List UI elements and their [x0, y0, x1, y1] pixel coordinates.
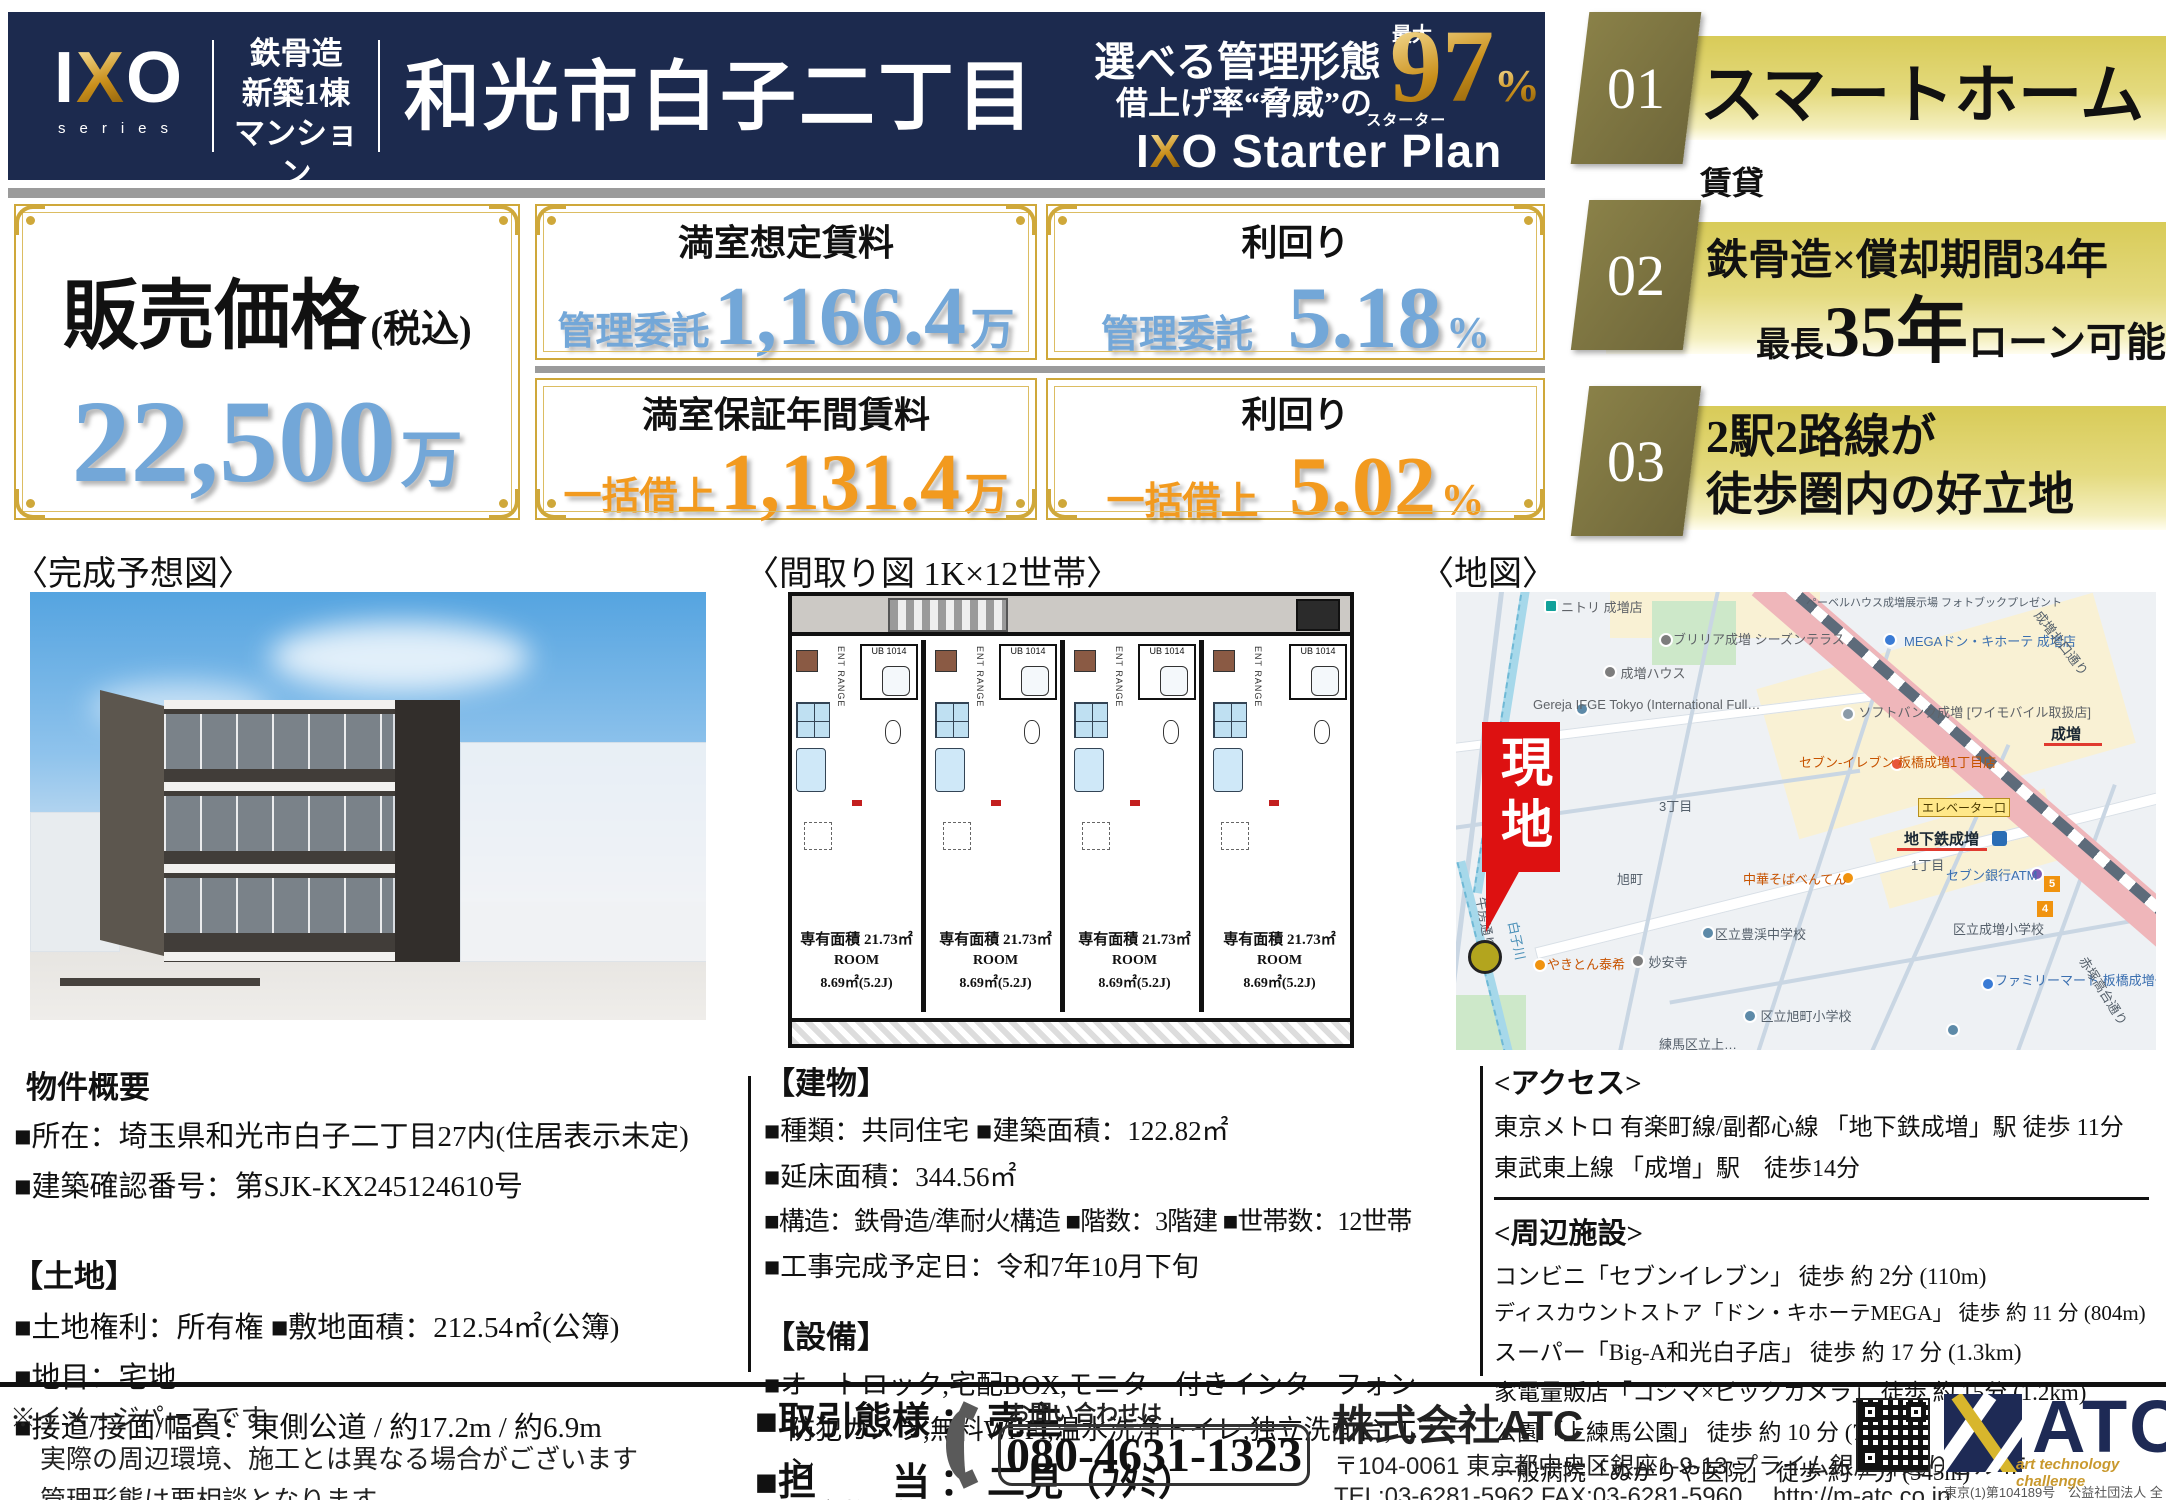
- feature-3-badge: 03: [1571, 386, 1701, 536]
- unit-plan: ENT RANGE UB 1014 専有面積 21.73㎡ ROOM 8.69㎡…: [792, 640, 926, 1012]
- feature-3-line2: 徒歩圏内の好立地: [1706, 466, 2074, 524]
- footer-notes: ※イメージパースです 実際の周辺環境、施工とは異なる場合がございます 管理形態は…: [10, 1398, 638, 1500]
- ub-label: UB 1014: [1149, 646, 1184, 656]
- bathtub: [1311, 666, 1339, 696]
- building-render: [30, 592, 706, 1020]
- unit-plan: ENT RANGE UB 1014 専有面積 21.73㎡ ROOM 8.69㎡…: [931, 640, 1065, 1012]
- nearby-line: ディスカウントストア「ドン・キホーテMEGA」 徒歩 約 11 分 (804m): [1494, 1297, 2160, 1327]
- feature-1-badge: 01: [1571, 12, 1702, 164]
- frame-corner: [1006, 205, 1036, 235]
- station-underline: [2044, 743, 2102, 746]
- unit-bath: UB 1014: [999, 644, 1057, 700]
- plan-logo-x: X: [1150, 125, 1182, 177]
- feature-1-main: スマートホーム: [1700, 60, 2144, 131]
- ceiling-light: [943, 822, 971, 850]
- stat-unit: 万: [964, 470, 1008, 519]
- map-label: 区立旭町小学校: [1761, 1006, 1852, 1025]
- price-value: 22,500: [72, 376, 397, 507]
- poi-icon: [1981, 977, 1995, 991]
- rate-97: 97%: [1390, 20, 1540, 114]
- wall-marker: [1130, 800, 1140, 806]
- map-label: 区立成増小学校: [1953, 919, 2044, 938]
- rate-value: 97: [1390, 9, 1494, 124]
- stat-value: 1,131.4: [720, 439, 960, 527]
- phone-number-box: 080-4631-1323: [998, 1424, 1310, 1486]
- note-line: 実際の周辺環境、施工とは異なる場合がございます: [40, 1439, 638, 1476]
- features-column: スマートホーム 賃貸 01 鉄骨造×償却期間34年 最長35年ローン可能 02 …: [1560, 0, 2166, 540]
- unit-area: 専有面積 21.73㎡: [1209, 928, 1350, 949]
- building-dark-column: [395, 700, 460, 962]
- feature-3-text: 2駅2路線が 徒歩圏内の好立地: [1706, 408, 2074, 524]
- logo-letter-i: I: [54, 38, 76, 118]
- stat-title: 利回り: [1048, 386, 1543, 438]
- route-number: 4: [2037, 901, 2053, 917]
- kitchen: [796, 702, 830, 738]
- unit-area: 専有面積 21.73㎡: [1070, 928, 1199, 949]
- map-label: やきとん泰希: [1547, 954, 1625, 973]
- frame-corner: [1006, 489, 1036, 519]
- unit-area: 専有面積 21.73㎡: [792, 928, 921, 949]
- fence: [60, 978, 260, 986]
- divider-bar: [8, 188, 1545, 198]
- frame-corner: [536, 489, 566, 519]
- overview-line: ■所在：埼玉県和光市白子二丁目27内(住居表示未定): [14, 1113, 741, 1155]
- frame-corner: [1047, 489, 1077, 519]
- feature-2-badge: 02: [1571, 200, 1701, 350]
- unit-plan: ENT RANGE UB 1014 専有面積 21.73㎡ ROOM 8.69㎡…: [1209, 640, 1350, 1012]
- feature-1-text: スマートホーム 賃貸: [1700, 44, 2166, 210]
- frame-corner: [1514, 489, 1544, 519]
- toilet: [1024, 720, 1040, 744]
- site-marker-text: 現地: [1484, 735, 1559, 859]
- price-box: 販売価格 (税込) 22,500 万: [14, 204, 520, 520]
- sink: [796, 748, 826, 792]
- room-size: 8.69㎡(5.2J): [792, 972, 921, 992]
- unit-area: 専有面積 21.73㎡: [931, 928, 1060, 949]
- ixo-logo: IXO series: [54, 42, 184, 137]
- balcony-strip: [792, 1018, 1350, 1044]
- phone-number: 080-4631-1323: [1006, 1428, 1302, 1483]
- balcony-glass: [164, 796, 395, 851]
- map-label: 練馬区立上…: [1659, 1034, 1737, 1050]
- plan-line: IXOスターター Starter Plan: [1136, 124, 1502, 178]
- main-building: [100, 700, 460, 968]
- feature-1-suffix: 賃貸: [1700, 165, 1764, 201]
- atc-logo-text: ATC: [2032, 1394, 2166, 1461]
- plan-ruby: スターター: [1366, 109, 1446, 130]
- flyer-page: IXO series 鉄骨造 新築1棟 マンション 和光市白子二丁目 選べる管理…: [0, 0, 2166, 1500]
- entry-label: ENT RANGE: [1114, 646, 1124, 707]
- stat-tag: 管理委託: [1101, 314, 1253, 356]
- building-side-face: [100, 690, 164, 956]
- entry-label: ENT RANGE: [1253, 646, 1263, 707]
- building-front-face: [164, 700, 460, 962]
- poi-icon: [1544, 599, 1558, 613]
- feature-2-big: 35年: [1824, 292, 1968, 372]
- kitchen: [935, 702, 969, 738]
- stat-title: 利回り: [1048, 214, 1543, 266]
- map-label: 妙安寺: [1649, 952, 1688, 971]
- shoe-box: [935, 650, 957, 672]
- shoe-box: [1074, 650, 1096, 672]
- site-location-dot: [1468, 940, 1502, 974]
- plan-name: Starter Plan: [1218, 125, 1502, 177]
- stat-value: 1,166.4: [714, 270, 966, 363]
- room-text: 専有面積 21.73㎡ ROOM 8.69㎡(5.2J): [1209, 928, 1350, 992]
- building-line: ■工事完成予定日：令和7年10月下旬: [764, 1245, 1476, 1284]
- note-line: ※イメージパースです: [10, 1398, 638, 1435]
- kitchen: [1074, 702, 1108, 738]
- stat-value-row: 一括借上 1,131.4 万: [537, 438, 1035, 529]
- header-divider: [378, 40, 380, 152]
- poi-icon: [1701, 926, 1715, 940]
- access-heading: <アクセス>: [1494, 1060, 2160, 1102]
- overview-column: 物件概要 ■所在：埼玉県和光市白子二丁目27内(住居表示未定) ■建築確認番号：…: [26, 1062, 741, 1446]
- logo-series-label: series: [58, 120, 184, 137]
- bathtub: [882, 666, 910, 696]
- badge-line: 新築1棟: [222, 74, 370, 114]
- route-number: 5: [2044, 876, 2060, 892]
- ceiling-light: [1221, 822, 1249, 850]
- stat-value: 5.18: [1288, 270, 1442, 367]
- kitchen: [1213, 702, 1247, 738]
- price-tax-note: (税込): [370, 309, 471, 351]
- metro-icon: [1992, 831, 2007, 846]
- column-divider: [748, 1076, 751, 1372]
- stat-unit: %: [1440, 475, 1484, 524]
- shoe-box: [796, 650, 818, 672]
- price-unit: 万: [400, 427, 462, 495]
- company-name: 株式会社ATC: [1332, 1392, 1583, 1453]
- shoe-box: [1213, 650, 1235, 672]
- toilet: [885, 720, 901, 744]
- map-label: 中華そばべんてん: [1743, 869, 1846, 888]
- feature-2-line2: 最長35年ローン可能: [1756, 272, 2166, 377]
- stat-value-row: 管理委託 5.18 %: [1048, 268, 1543, 369]
- stat-box-rent-lease: 満室保証年間賃料 一括借上 1,131.4 万: [535, 378, 1037, 520]
- balcony-glass: [164, 878, 395, 933]
- map-label: セブン銀行ATM: [1946, 865, 2037, 884]
- plan-logo-o: O: [1181, 125, 1218, 177]
- ub-label: UB 1014: [871, 646, 906, 656]
- stat-value-row: 一括借上 5.02 %: [1048, 438, 1543, 535]
- badge-line: マンション: [222, 114, 370, 194]
- ceiling-light: [804, 822, 832, 850]
- company-tel-fax: TEL:03-6281-5962 FAX:03-6281-5960 http:/…: [1334, 1476, 1950, 1500]
- site-marker: 現地: [1482, 722, 1560, 872]
- frame-corner: [489, 489, 519, 519]
- room-text: 専有面積 21.73㎡ ROOM 8.69㎡(5.2J): [931, 928, 1060, 992]
- map-section-label: 〈地図〉: [1420, 546, 1556, 595]
- bathtub: [1021, 666, 1049, 696]
- station-underline: [1897, 848, 1987, 851]
- ub-label: UB 1014: [1300, 646, 1335, 656]
- frame-corner: [1514, 205, 1544, 235]
- logo-letter-x: X: [76, 38, 126, 118]
- balcony-glass: [164, 714, 395, 769]
- mgmt-line2: 借上げ率“脅威”の: [1116, 78, 1372, 124]
- stat-title: 満室想定賃料: [537, 214, 1035, 266]
- wall-marker: [1269, 800, 1279, 806]
- price-label-row: 販売価格 (税込): [16, 254, 518, 364]
- entry-label: ENT RANGE: [836, 646, 846, 707]
- room-label: ROOM: [931, 953, 1060, 969]
- map-label: セブン-イレブン 板橋成増1丁目店: [1799, 752, 1996, 771]
- render-section-label: 〈完成予想図〉: [14, 546, 252, 595]
- phone-icon: [946, 1408, 990, 1482]
- room-label: ROOM: [792, 953, 921, 969]
- frame-corner: [489, 205, 519, 235]
- bathtub: [1160, 666, 1188, 696]
- stat-tag: 一括借上: [564, 476, 716, 518]
- sink: [1213, 748, 1243, 792]
- map-station-label: 地下鉄成増: [1904, 828, 1979, 849]
- access-divider: [1494, 1197, 2149, 1200]
- sink: [1074, 748, 1104, 792]
- map-label: ファミリーマート 板橋成増一丁目店: [1995, 970, 2156, 989]
- frame-corner: [1047, 205, 1077, 235]
- header-bar: IXO series 鉄骨造 新築1棟 マンション 和光市白子二丁目 選べる管理…: [8, 12, 1545, 180]
- map-label: Gereja IFGE Tokyo (International Full…: [1533, 697, 1760, 712]
- poi-icon: [1631, 954, 1645, 968]
- map-label: 1丁目: [1911, 855, 1944, 874]
- map-label: 3丁目: [1659, 796, 1692, 815]
- room-size: 8.69㎡(5.2J): [1070, 972, 1199, 992]
- stat-value: 5.02: [1289, 440, 1436, 533]
- map-label: 成増ハウス: [1621, 663, 1686, 682]
- overview-line: ■建築確認番号：第SJK-KX245124610号: [14, 1163, 741, 1205]
- floorplan-section-label: 〈間取り図 1K×12世帯〉: [745, 546, 1120, 595]
- feature-1-number: 01: [1607, 55, 1665, 122]
- room-size: 8.69㎡(5.2J): [1209, 972, 1350, 992]
- sink: [935, 748, 965, 792]
- map-station-label: 成増: [2051, 723, 2081, 744]
- access-line: 東武東上線 「成増」駅 徒歩14分: [1494, 1148, 2160, 1183]
- header-divider: [212, 40, 214, 152]
- feature-2-number: 02: [1607, 242, 1665, 309]
- map: ニトリ 成増店 ペーベルハウス成増展示場 フォトブックプレゼント ブリリア成増 …: [1456, 592, 2156, 1050]
- stat-tag: 管理委託: [558, 311, 710, 353]
- cloud: [270, 622, 530, 692]
- map-label: ブリリア成増 シーズンテラス: [1673, 629, 1845, 648]
- land-heading: 【土地】: [12, 1251, 741, 1296]
- frame-corner: [15, 489, 45, 519]
- price-label: 販売価格: [62, 275, 366, 359]
- feature-2-pre: 最長: [1756, 327, 1824, 364]
- ceiling-light: [1082, 822, 1110, 850]
- land-line: ■地目：宅地: [14, 1354, 741, 1396]
- badge-line: 鉄骨造: [222, 34, 370, 74]
- unit-bath: UB 1014: [1138, 644, 1196, 700]
- ub-label: UB 1014: [1010, 646, 1045, 656]
- room-label: ROOM: [1070, 953, 1199, 969]
- room-text: 専有面積 21.73㎡ ROOM 8.69㎡(5.2J): [1070, 928, 1199, 992]
- poi-icon: [1883, 633, 1897, 647]
- wall-marker: [852, 800, 862, 806]
- feature-2-post: ローン可能: [1968, 320, 2166, 365]
- header-badge: 鉄骨造 新築1棟 マンション: [222, 34, 370, 194]
- background-building: [460, 742, 706, 962]
- nearby-line: コンビニ「セブンイレブン」 徒歩 約 2分 (110m): [1494, 1257, 2160, 1291]
- map-road-label: 赤塚高台通り: [2075, 953, 2132, 1029]
- poi-icon: [1533, 958, 1547, 972]
- nearby-heading: <周辺施設>: [1494, 1210, 2160, 1252]
- stairs: [888, 598, 1008, 632]
- map-label: ペーベルハウス成増展示場 フォトブックプレゼント: [1806, 594, 2062, 610]
- stat-title: 満室保証年間賃料: [537, 386, 1035, 438]
- stat-unit: 万: [970, 305, 1014, 354]
- registration-text: 東京(1)第104189号 公益社団法人 全日本不動産協会会員: [1944, 1482, 2164, 1500]
- footer-divider: [0, 1382, 2166, 1387]
- map-label: 旭町: [1617, 869, 1643, 888]
- room-label: ROOM: [1209, 953, 1350, 969]
- site-marker-pointer: [1486, 870, 1520, 932]
- land-line: ■土地権利：所有権 ■敷地面積：212.54㎡(公簿): [14, 1304, 741, 1346]
- frame-corner: [15, 205, 45, 235]
- floorplan: ENT RANGE UB 1014 専有面積 21.73㎡ ROOM 8.69㎡…: [788, 592, 1354, 1048]
- plan-logo-i: I: [1136, 125, 1150, 177]
- building-line: ■延床面積：344.56㎡: [764, 1155, 1476, 1194]
- unit-bath: UB 1014: [860, 644, 918, 700]
- wall-marker: [991, 800, 1001, 806]
- property-title: 和光市白子二丁目: [404, 60, 1036, 136]
- toilet: [1314, 720, 1330, 744]
- toilet: [1163, 720, 1179, 744]
- building-line: ■構造：鉄骨造/準耐火構造 ■階数：3階建 ■世帯数：12世帯: [764, 1201, 1476, 1238]
- feature-3-line1: 2駅2路線が: [1706, 408, 2074, 466]
- poi-icon: [1603, 665, 1617, 679]
- stat-value-row: 管理委託 1,166.4 万: [537, 268, 1035, 365]
- stat-box-yield-lease: 利回り 一括借上 5.02 %: [1046, 378, 1545, 520]
- price-value-row: 22,500 万: [16, 374, 518, 510]
- nearby-line: スーパー「Big-A和光白子店」 徒歩 約 17 分 (1.3km): [1494, 1333, 2160, 1367]
- stat-box-rent-mgmt: 満室想定賃料 管理委託 1,166.4 万: [535, 204, 1037, 360]
- map-label: ソフトバンク成増 [ワイモバイル取扱店]: [1859, 702, 2092, 721]
- stat-box-yield-mgmt: 利回り 管理委託 5.18 %: [1046, 204, 1545, 360]
- column-divider: [1480, 1066, 1483, 1376]
- elevator-exit-label: エレベーター口: [1918, 798, 2010, 817]
- equipment-heading: 【設備】: [764, 1312, 1476, 1357]
- room-text: 専有面積 21.73㎡ ROOM 8.69㎡(5.2J): [792, 928, 921, 992]
- logo-letter-o: O: [126, 38, 184, 118]
- rate-unit: %: [1494, 60, 1540, 111]
- note-line: 管理形態は要相談となります: [40, 1480, 638, 1500]
- building-line: ■種類：共同住宅 ■建築面積：122.82㎡: [764, 1109, 1476, 1148]
- room-size: 8.69㎡(5.2J): [931, 972, 1060, 992]
- poi-icon: [1743, 1009, 1757, 1023]
- stat-tag: 一括借上: [1107, 481, 1259, 523]
- frame-corner: [536, 205, 566, 235]
- elevator-box: [1296, 599, 1340, 631]
- map-label: ニトリ 成増店: [1561, 597, 1643, 616]
- corridor: [792, 596, 1350, 636]
- access-line: 東京メトロ 有楽町線/副都心線 「地下鉄成増」駅 徒歩 11分: [1494, 1107, 2160, 1142]
- entry-label: ENT RANGE: [975, 646, 985, 707]
- poi-icon: [1841, 707, 1855, 721]
- overview-heading: 物件概要: [26, 1062, 741, 1107]
- stat-unit: %: [1446, 308, 1490, 357]
- unit-bath: UB 1014: [1289, 644, 1347, 700]
- atc-logo-mark: [1944, 1394, 2022, 1472]
- building-heading: 【建物】: [764, 1058, 1476, 1103]
- qr-code: [1856, 1398, 1930, 1472]
- poi-icon: [1946, 1023, 1960, 1037]
- unit-plan: ENT RANGE UB 1014 専有面積 21.73㎡ ROOM 8.69㎡…: [1070, 640, 1204, 1012]
- feature-3-number: 03: [1607, 428, 1665, 495]
- map-label: 区立豊渓中学校: [1715, 924, 1806, 943]
